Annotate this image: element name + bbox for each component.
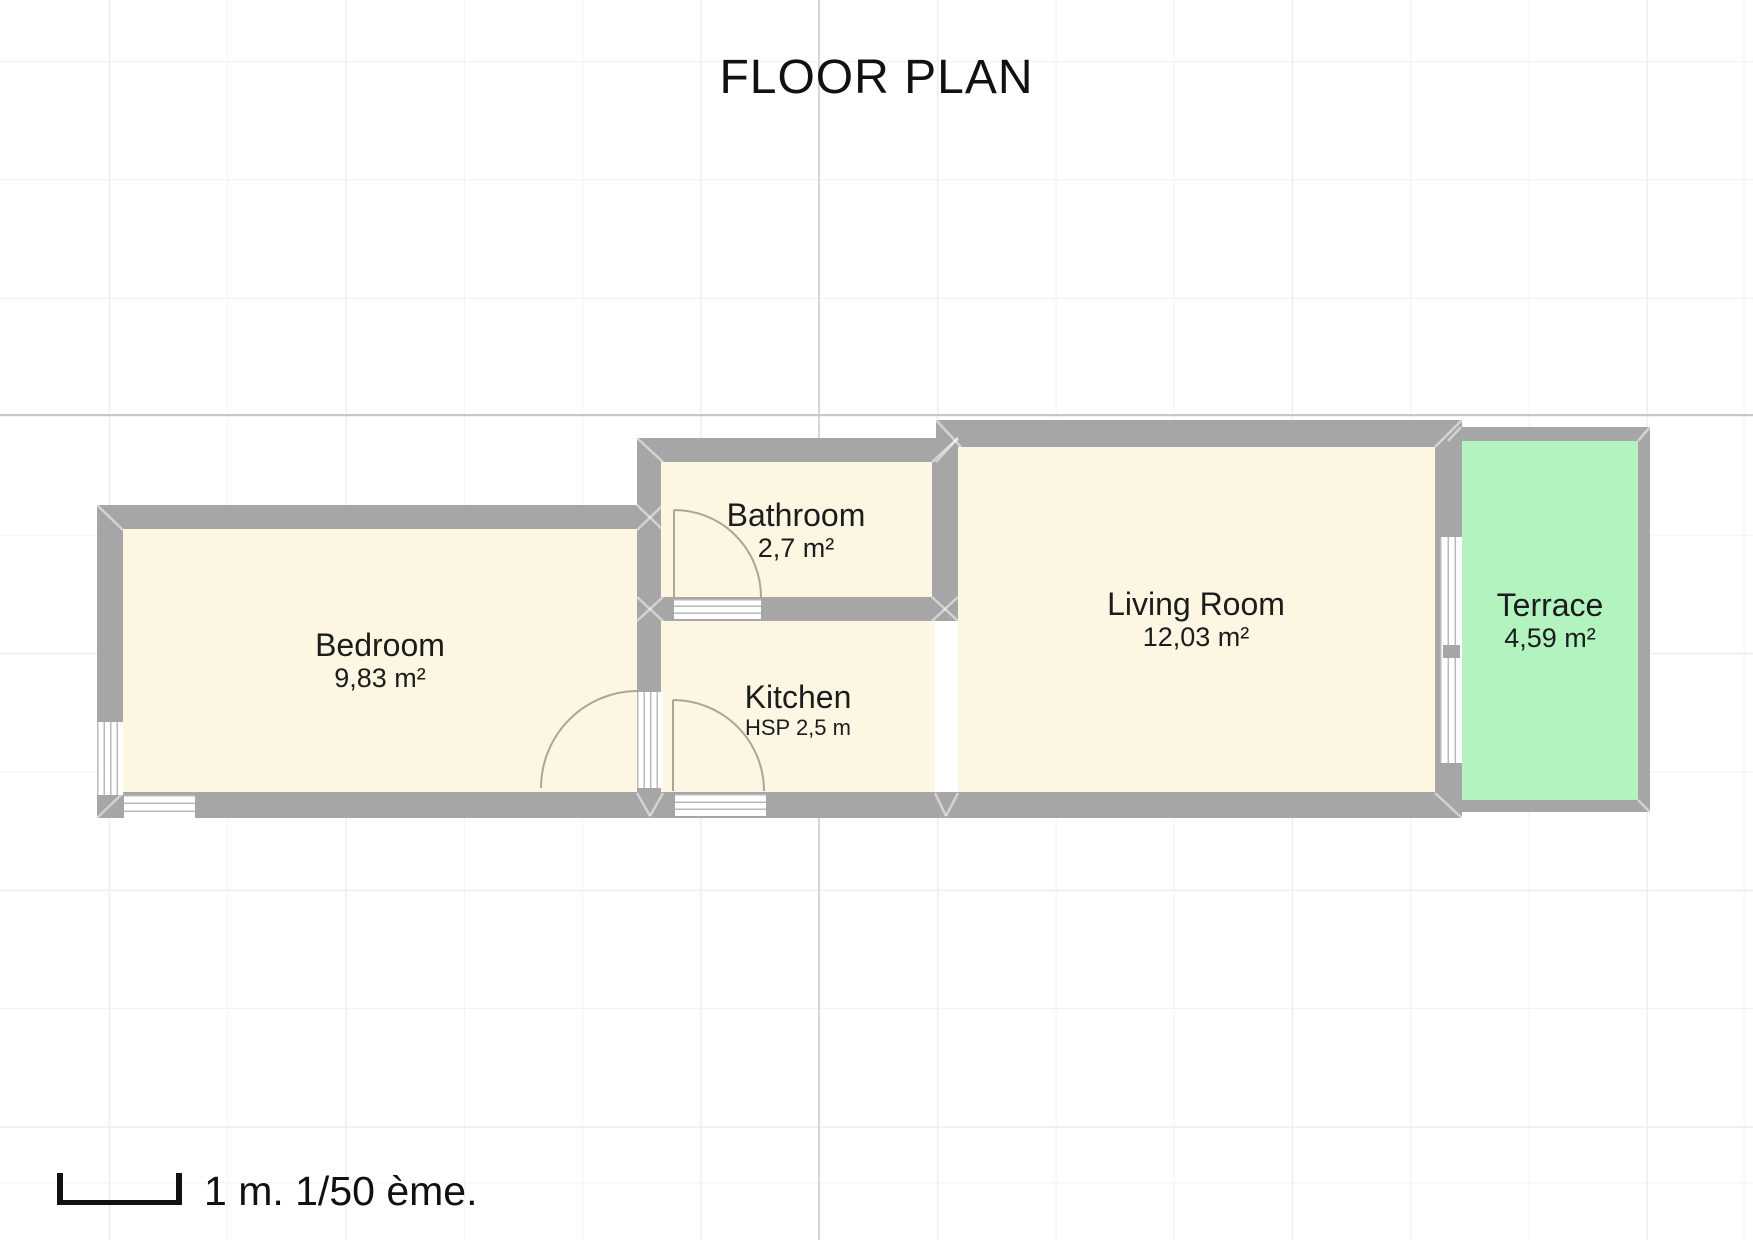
living-room-area: 12,03 m² xyxy=(1143,622,1250,652)
kitchen-label: Kitchen HSP 2,5 m xyxy=(638,672,958,748)
living-room-name: Living Room xyxy=(1107,586,1285,622)
terrace-label: Terrace 4,59 m² xyxy=(1390,582,1710,658)
wall-bedroom-kitchen-stub xyxy=(637,788,663,794)
terrace-name: Terrace xyxy=(1497,587,1604,623)
bedroom-name: Bedroom xyxy=(315,627,445,663)
grid-major-horizontal-line xyxy=(0,414,1753,416)
wall-bathroom-top xyxy=(637,438,958,462)
wall-living-top xyxy=(936,420,1462,447)
kitchen-ceiling-height: HSP 2,5 m xyxy=(745,715,851,741)
kitchen-name: Kitchen xyxy=(745,679,852,715)
kitchen-entry-threshold xyxy=(675,794,766,816)
floor-plan: FLOOR PLAN xyxy=(0,0,1753,1240)
page-title: FLOOR PLAN xyxy=(0,50,1753,105)
scale-bar-rule xyxy=(57,1200,182,1205)
bedroom-bottom-window xyxy=(124,795,195,818)
bathroom-name: Bathroom xyxy=(727,497,866,533)
bathroom-area: 2,7 m² xyxy=(758,533,835,563)
bedroom-label: Bedroom 9,83 m² xyxy=(220,622,540,698)
bathroom-door-threshold xyxy=(674,599,761,619)
wall-terrace-top xyxy=(1448,427,1650,441)
terrace-area: 4,59 m² xyxy=(1504,623,1596,653)
scale-bar-right-tick xyxy=(176,1173,182,1205)
bedroom-area: 9,83 m² xyxy=(334,663,426,693)
living-room-label: Living Room 12,03 m² xyxy=(1036,581,1356,657)
wall-bottom-main xyxy=(97,792,1462,818)
wall-terrace-bottom xyxy=(1448,800,1650,812)
bathroom-label: Bathroom 2,7 m² xyxy=(636,492,956,568)
scale-label: 1 m. 1/50 ème. xyxy=(204,1168,477,1215)
bedroom-left-window xyxy=(97,722,123,795)
wall-bedroom-top xyxy=(97,505,663,529)
